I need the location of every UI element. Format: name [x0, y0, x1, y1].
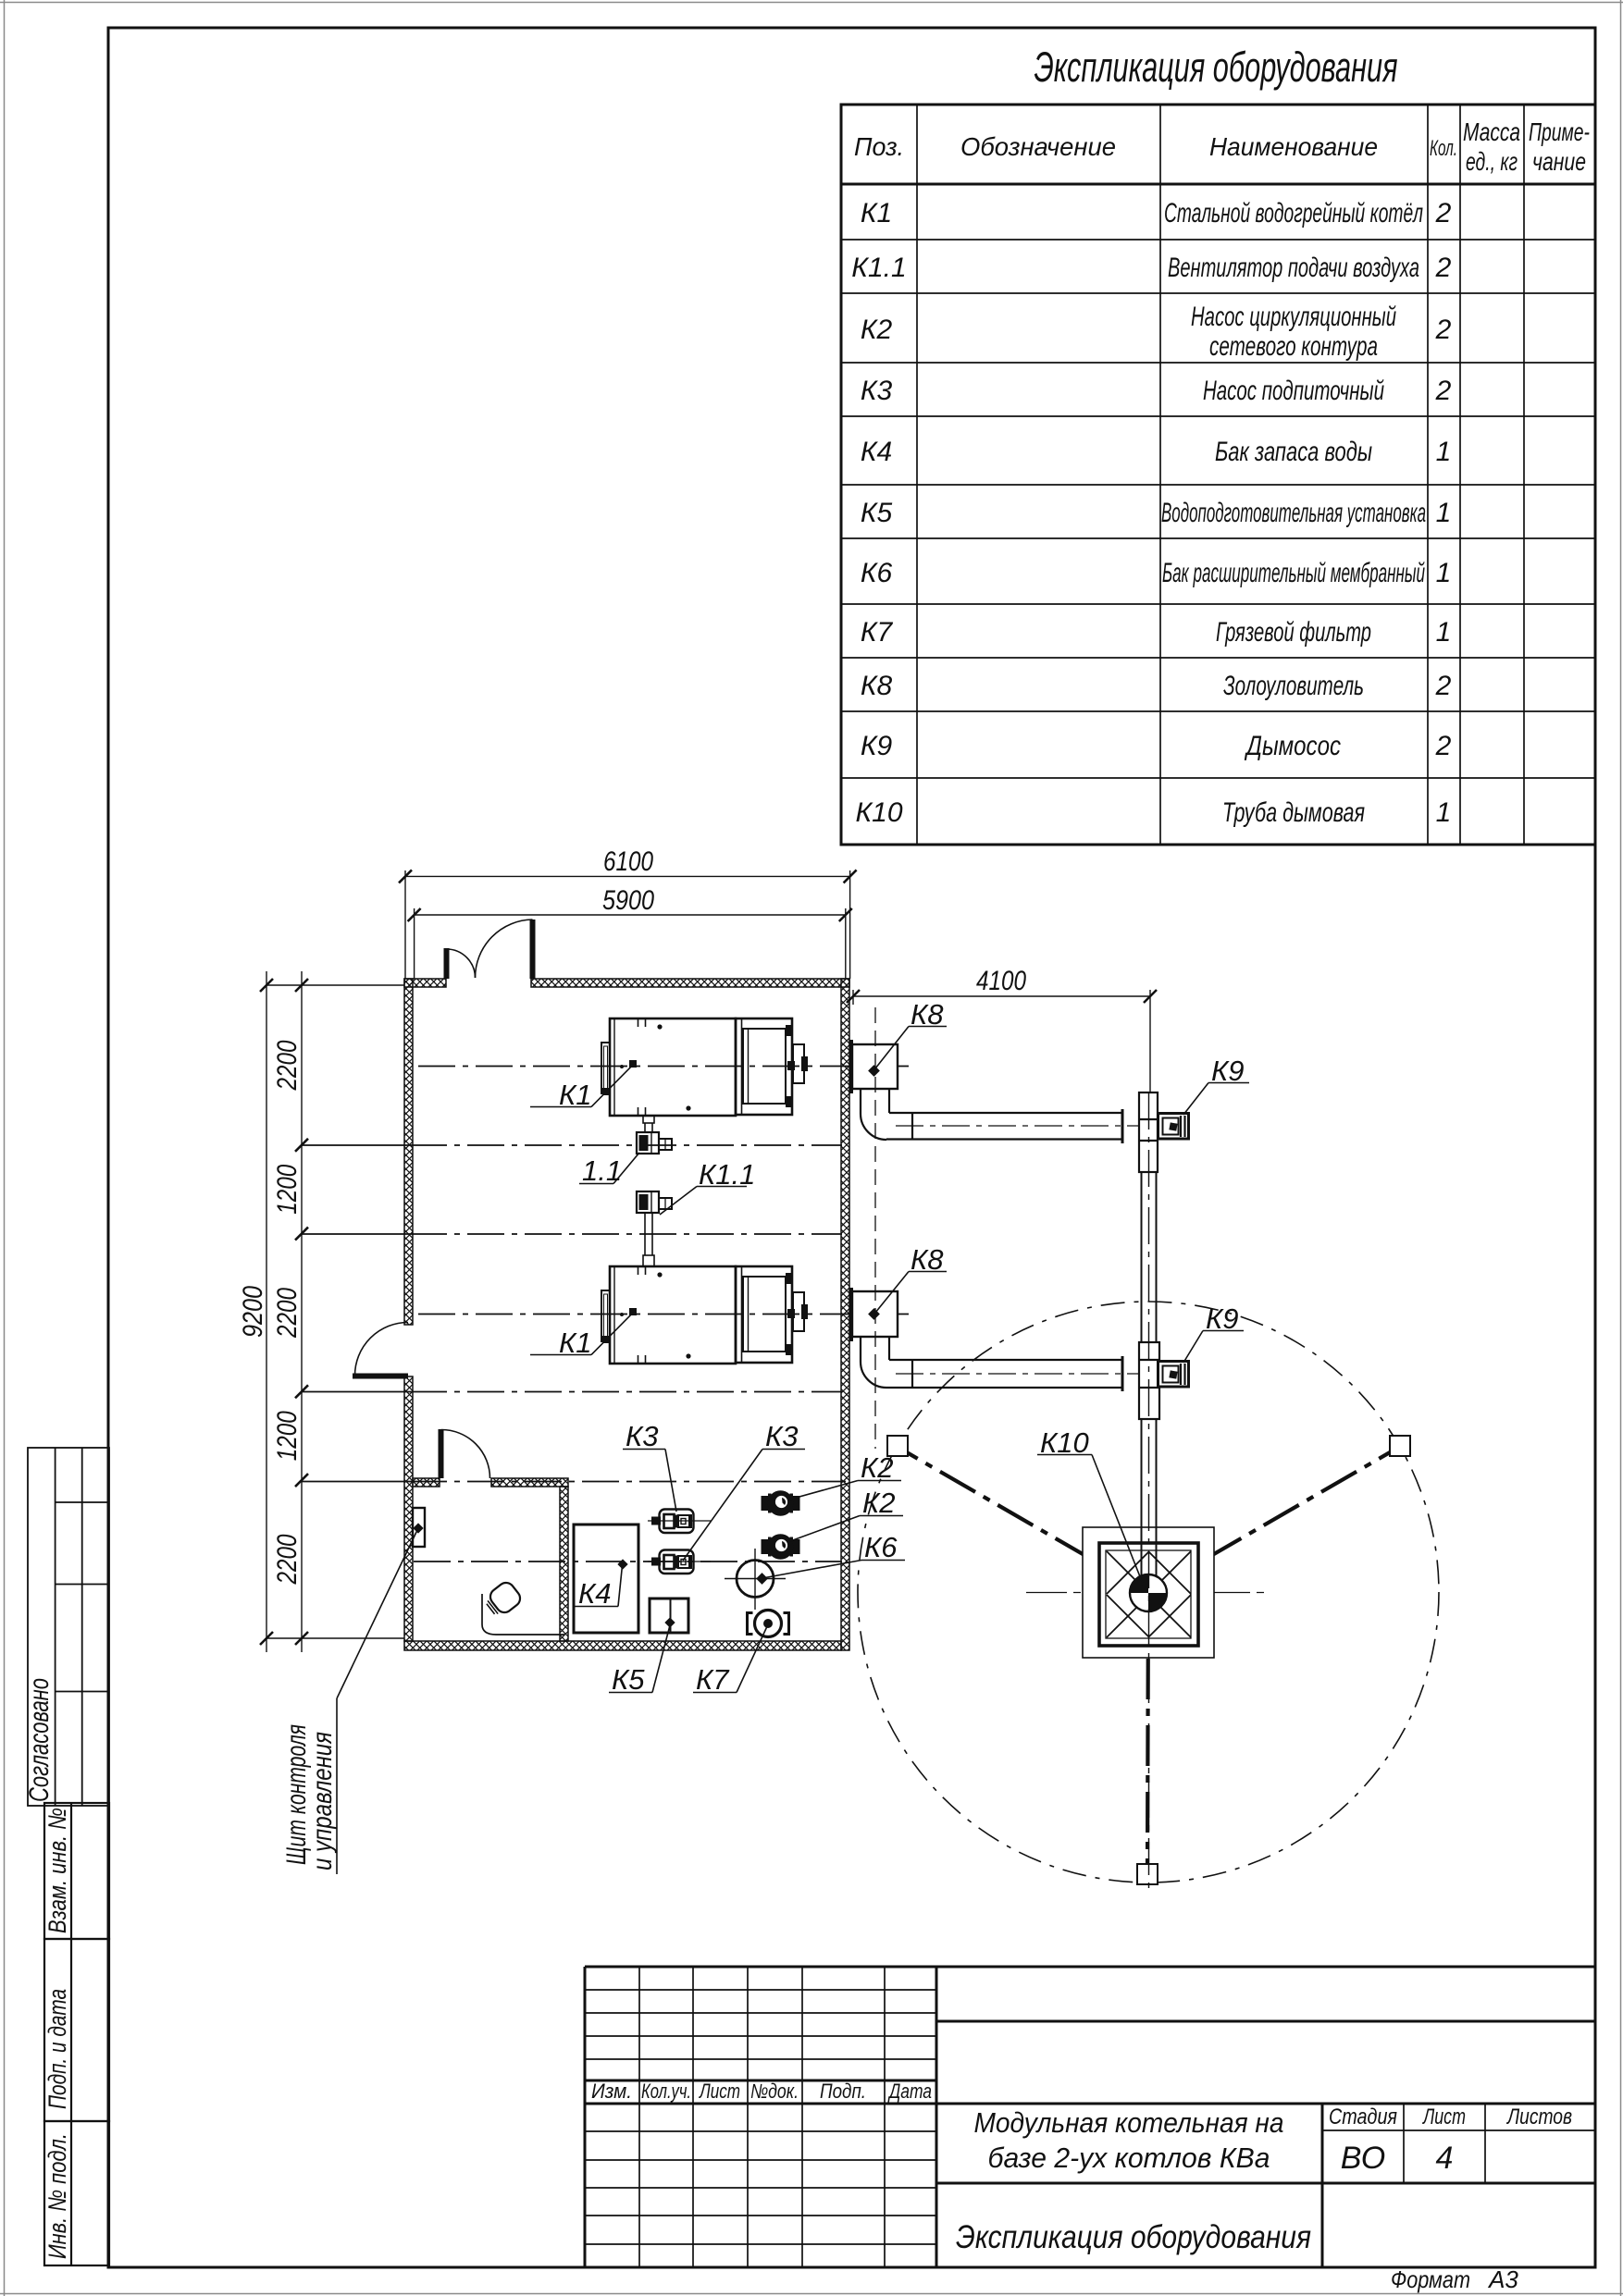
- svg-text:5900: 5900: [602, 885, 654, 916]
- svg-text:1: 1: [1436, 498, 1452, 528]
- svg-text:К10: К10: [855, 797, 902, 828]
- svg-text:Труба дымовая: Труба дымовая: [1222, 797, 1365, 828]
- svg-text:К1.1: К1.1: [851, 253, 906, 283]
- svg-text:Кол.: Кол.: [1430, 136, 1457, 161]
- svg-text:К7: К7: [696, 1663, 730, 1696]
- svg-text:Наименование: Наименование: [1209, 132, 1378, 161]
- svg-text:Насос подпиточный: Насос подпиточный: [1203, 376, 1384, 406]
- svg-text:и управления: и управления: [307, 1732, 338, 1870]
- svg-text:ВО: ВО: [1341, 2141, 1385, 2176]
- svg-text:К3: К3: [626, 1420, 659, 1452]
- svg-text:Водоподготовительная установка: Водоподготовительная установка: [1161, 498, 1426, 528]
- svg-text:Модульная котельная на: Модульная котельная на: [974, 2106, 1284, 2139]
- svg-text:2: 2: [1435, 198, 1452, 228]
- svg-text:1: 1: [1436, 617, 1452, 648]
- svg-text:Кол.уч.: Кол.уч.: [641, 2080, 691, 2103]
- svg-text:2: 2: [1435, 315, 1452, 345]
- svg-text:2: 2: [1435, 376, 1452, 406]
- svg-text:1: 1: [1436, 797, 1452, 828]
- svg-text:базе 2-ух котлов КВа: базе 2-ух котлов КВа: [988, 2142, 1270, 2174]
- svg-text:К2: К2: [862, 1487, 896, 1519]
- svg-text:Приме-: Приме-: [1529, 117, 1590, 146]
- svg-text:1: 1: [1436, 437, 1452, 467]
- svg-text:Обозначение: Обозначение: [960, 132, 1116, 161]
- svg-text:Экспликация оборудования: Экспликация оборудования: [1035, 43, 1398, 91]
- svg-text:6100: 6100: [603, 846, 653, 877]
- svg-text:К4: К4: [861, 437, 892, 467]
- svg-text:Изм.: Изм.: [591, 2080, 632, 2103]
- svg-text:К4: К4: [578, 1577, 612, 1610]
- svg-text:Насос циркуляционный: Насос циркуляционный: [1191, 302, 1396, 332]
- svg-text:Подп.: Подп.: [820, 2080, 866, 2103]
- svg-text:2200: 2200: [272, 1040, 303, 1091]
- svg-text:сетевого контура: сетевого контура: [1209, 331, 1378, 362]
- svg-text:К9: К9: [861, 731, 893, 761]
- svg-text:Лист: Лист: [698, 2080, 740, 2103]
- svg-text:Стадия: Стадия: [1329, 2105, 1397, 2129]
- svg-text:К1: К1: [861, 198, 892, 228]
- svg-text:2: 2: [1435, 731, 1452, 761]
- svg-text:Дата: Дата: [887, 2080, 932, 2103]
- svg-text:К2: К2: [861, 315, 893, 345]
- svg-text:Листов: Листов: [1505, 2105, 1572, 2129]
- svg-text:4100: 4100: [976, 966, 1026, 996]
- svg-text:Дымосос: Дымосос: [1245, 731, 1341, 761]
- svg-text:Инв. № подл.: Инв. № подл.: [43, 2133, 71, 2259]
- svg-text:Формат: Формат: [1391, 2265, 1470, 2293]
- svg-text:чание: чание: [1532, 147, 1586, 176]
- svg-text:2: 2: [1435, 671, 1452, 701]
- svg-text:Стальной водогрейный котёл: Стальной водогрейный котёл: [1164, 198, 1423, 228]
- svg-text:К6: К6: [861, 558, 893, 588]
- svg-text:К8: К8: [861, 671, 893, 701]
- svg-text:А3: А3: [1487, 2265, 1518, 2293]
- svg-text:Согласовано: Согласовано: [24, 1678, 55, 1802]
- svg-text:Масса: Масса: [1463, 117, 1520, 146]
- svg-text:№док.: №док.: [750, 2080, 799, 2103]
- svg-text:2: 2: [1435, 253, 1452, 283]
- svg-text:К7: К7: [861, 617, 894, 648]
- svg-text:1200: 1200: [272, 1164, 303, 1214]
- svg-text:9200: 9200: [238, 1286, 268, 1338]
- svg-text:1200: 1200: [272, 1411, 303, 1461]
- svg-text:Бак запаса воды: Бак запаса воды: [1215, 437, 1372, 467]
- svg-text:Поз.: Поз.: [854, 132, 904, 161]
- svg-text:Золоуловитель: Золоуловитель: [1223, 671, 1364, 701]
- svg-text:К3: К3: [765, 1420, 799, 1452]
- svg-text:1: 1: [1436, 558, 1452, 588]
- svg-text:Вентилятор подачи воздуха: Вентилятор подачи воздуха: [1168, 253, 1419, 283]
- svg-text:2200: 2200: [272, 1288, 303, 1339]
- svg-text:Грязевой фильтр: Грязевой фильтр: [1216, 617, 1371, 648]
- svg-text:К6: К6: [864, 1531, 898, 1563]
- svg-text:Бак расширительный мембранный: Бак расширительный мембранный: [1162, 558, 1425, 588]
- svg-text:Взам. инв. №: Взам. инв. №: [43, 1808, 71, 1933]
- svg-text:К2: К2: [861, 1451, 894, 1484]
- svg-text:4: 4: [1436, 2141, 1454, 2176]
- svg-text:К5: К5: [861, 498, 893, 528]
- svg-text:Лист: Лист: [1422, 2105, 1466, 2129]
- svg-text:ед., кг: ед., кг: [1466, 147, 1518, 176]
- svg-text:К5: К5: [612, 1663, 645, 1696]
- svg-text:Экспликация оборудования: Экспликация оборудования: [956, 2219, 1311, 2255]
- svg-text:Подп. и дата: Подп. и дата: [43, 1989, 71, 2109]
- svg-text:2200: 2200: [272, 1534, 303, 1585]
- svg-text:К3: К3: [861, 376, 893, 406]
- svg-text:1.1: 1.1: [582, 1154, 622, 1187]
